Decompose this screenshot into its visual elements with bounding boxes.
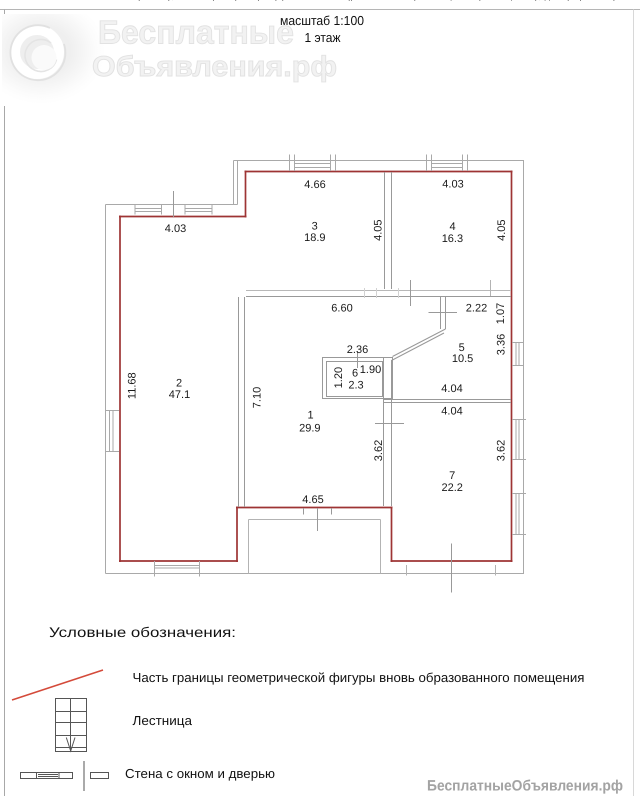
svg-text:этаж (этажи), на котором (кото: этаж (этажи), на котором (которых) распо… <box>112 0 617 1</box>
svg-text:1.90: 1.90 <box>360 364 381 376</box>
svg-text:3.36: 3.36 <box>495 334 507 355</box>
svg-text:Часть границы геометрической ф: Часть границы геометрической фигуры внов… <box>133 670 585 685</box>
svg-text:29.9: 29.9 <box>299 423 320 435</box>
svg-text:БесплатныеОбъявления.рф: БесплатныеОбъявления.рф <box>427 778 623 795</box>
svg-text:7.10: 7.10 <box>251 387 263 408</box>
svg-text:18.9: 18.9 <box>304 232 325 244</box>
svg-text:2.36: 2.36 <box>347 344 368 356</box>
svg-text:1: 1 <box>307 410 313 422</box>
svg-text:6: 6 <box>352 368 358 380</box>
svg-text:4.66: 4.66 <box>304 179 325 191</box>
svg-text:4.05: 4.05 <box>372 219 384 240</box>
svg-text:4.04: 4.04 <box>441 406 462 418</box>
svg-text:Бесплатные: Бесплатные <box>98 14 294 51</box>
svg-text:1.07: 1.07 <box>495 303 507 324</box>
svg-text:4.05: 4.05 <box>496 219 508 240</box>
svg-text:2.3: 2.3 <box>348 380 363 392</box>
svg-text:7: 7 <box>449 470 455 482</box>
svg-text:4.04: 4.04 <box>441 383 462 395</box>
svg-text:4.03: 4.03 <box>442 179 463 191</box>
svg-text:47.1: 47.1 <box>169 389 190 401</box>
svg-text:2.22: 2.22 <box>466 303 487 315</box>
svg-text:6.60: 6.60 <box>331 303 352 315</box>
svg-text:Стена с окном и дверью: Стена с окном и дверью <box>125 766 275 781</box>
svg-text:22.2: 22.2 <box>441 482 462 494</box>
svg-text:4: 4 <box>449 221 455 233</box>
svg-text:10.5: 10.5 <box>452 353 473 365</box>
svg-text:3.62: 3.62 <box>373 440 385 461</box>
svg-text:3: 3 <box>312 221 318 233</box>
svg-text:1 этаж: 1 этаж <box>305 30 341 45</box>
svg-text:масштаб 1:100: масштаб 1:100 <box>280 13 364 28</box>
svg-text:Лестница: Лестница <box>133 713 193 728</box>
svg-text:2: 2 <box>176 378 182 390</box>
svg-text:Объявления.рф: Объявления.рф <box>92 51 337 83</box>
svg-text:4.65: 4.65 <box>302 494 323 506</box>
svg-text:Условные обозначения:: Условные обозначения: <box>49 624 236 640</box>
svg-text:11.68: 11.68 <box>127 372 139 399</box>
svg-text:16.3: 16.3 <box>442 233 463 245</box>
svg-text:1.20: 1.20 <box>333 367 345 388</box>
svg-text:3.62: 3.62 <box>496 440 508 461</box>
svg-text:4.03: 4.03 <box>165 223 186 235</box>
